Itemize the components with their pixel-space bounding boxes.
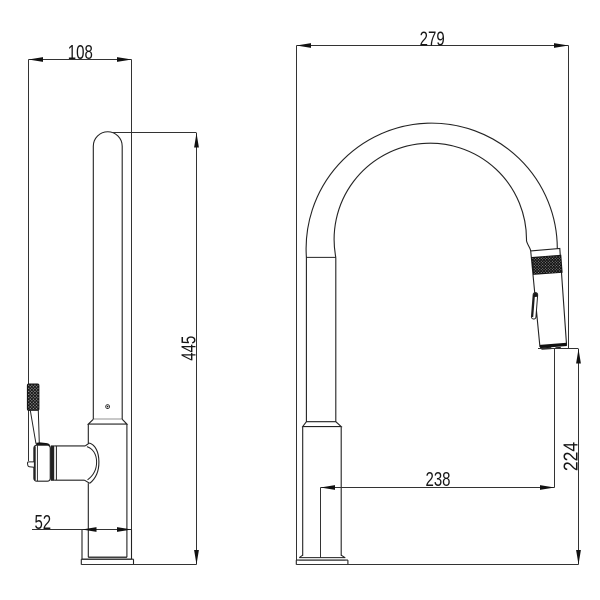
svg-text:52: 52 [34, 511, 51, 534]
svg-text:224: 224 [560, 442, 582, 471]
svg-text:445: 445 [177, 336, 200, 361]
svg-text:108: 108 [68, 41, 93, 64]
svg-text:238: 238 [425, 468, 450, 491]
svg-text:279: 279 [420, 27, 445, 50]
